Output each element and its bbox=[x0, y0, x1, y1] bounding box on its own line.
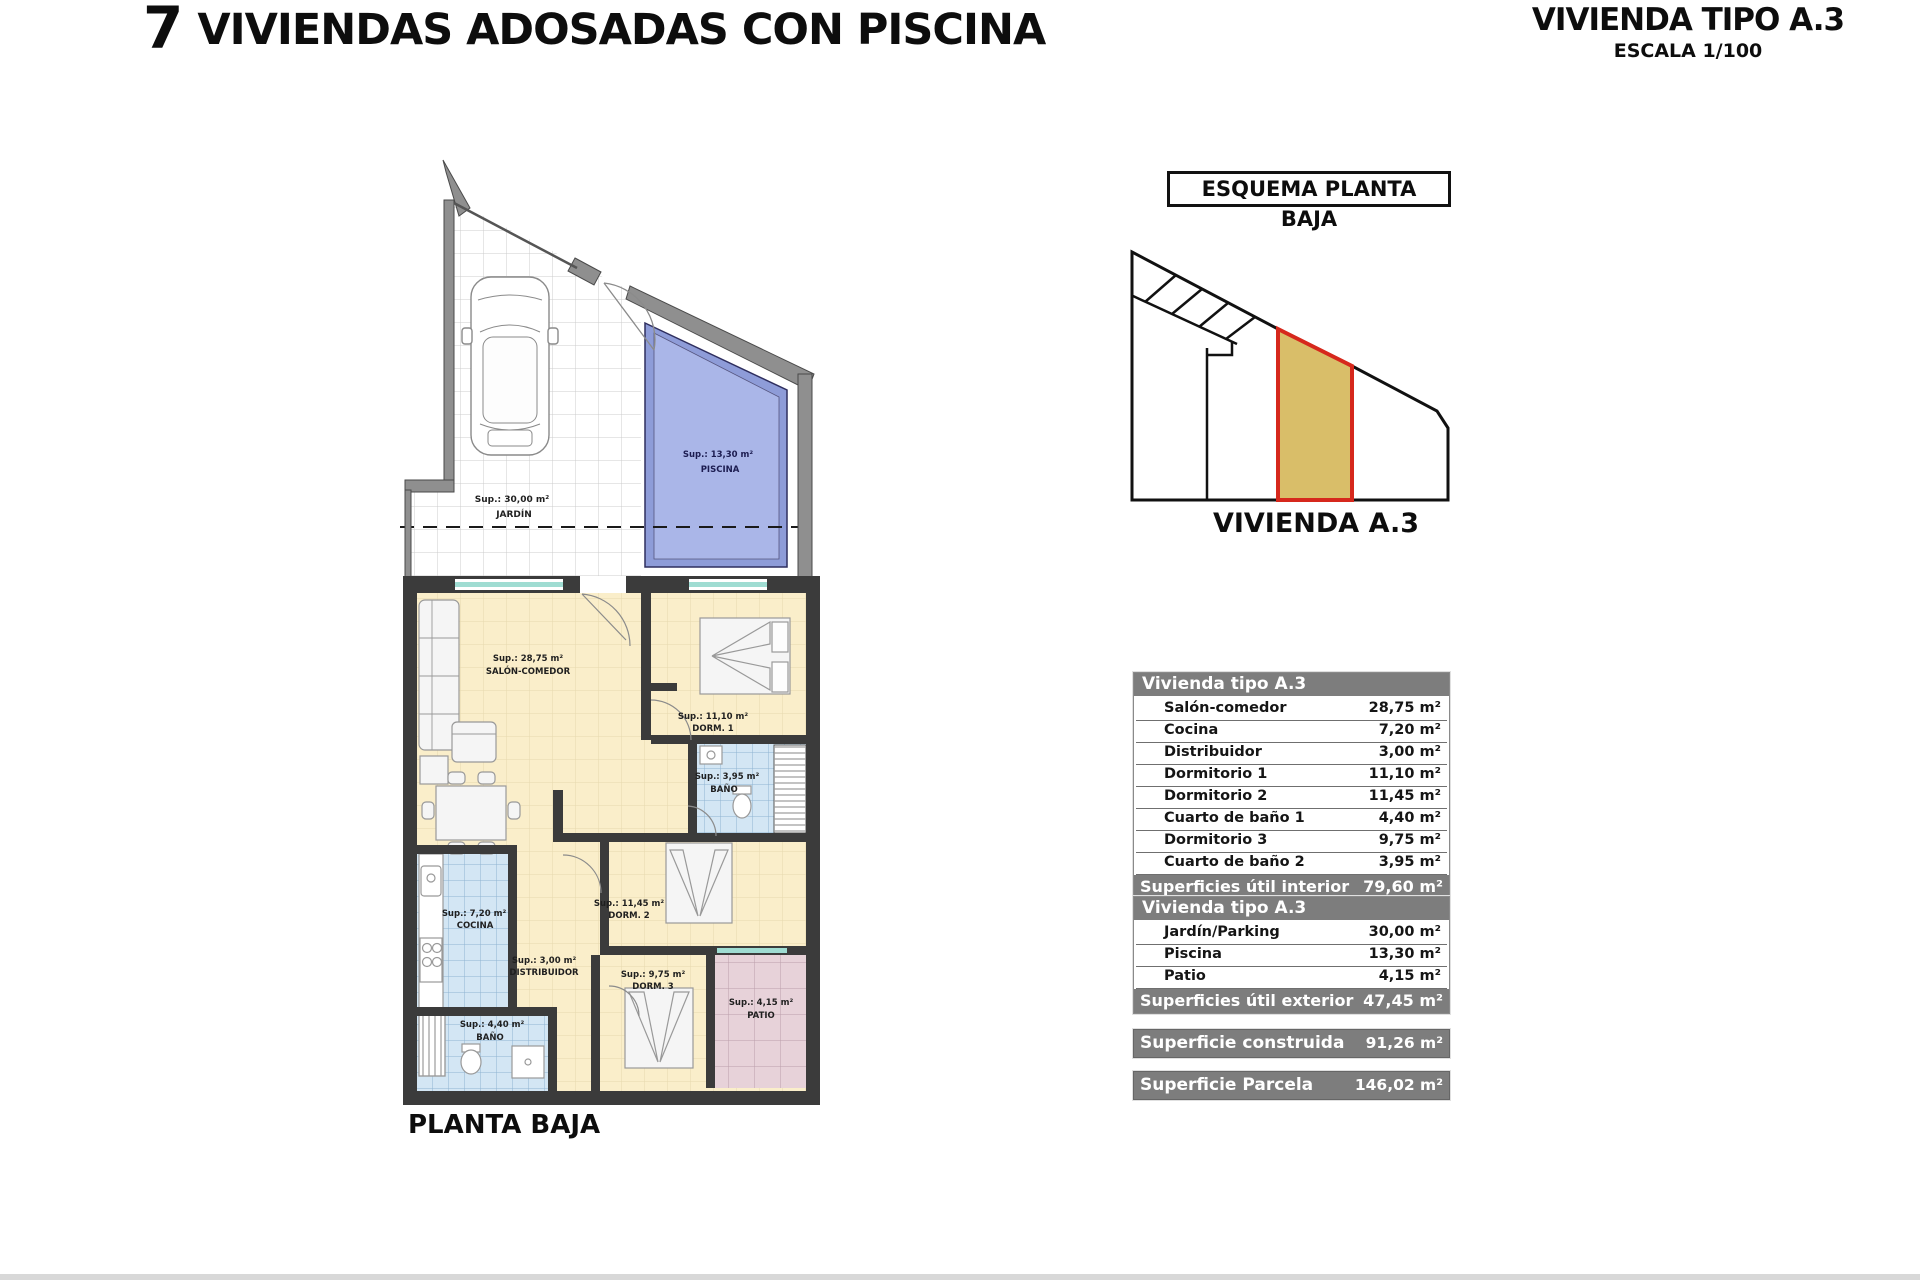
title-number: 7 bbox=[143, 0, 183, 62]
table-header: Vivienda tipo A.3 bbox=[1134, 673, 1449, 696]
table-row: Cocina7,20 m² bbox=[1136, 721, 1447, 743]
exterior-surfaces-table: Vivienda tipo A.3 Jardín/Parking30,00 m²… bbox=[1133, 896, 1450, 1014]
title-text: VIVIENDAS ADOSADAS CON PISCINA bbox=[183, 5, 1045, 55]
svg-text:BAÑO: BAÑO bbox=[710, 784, 737, 795]
table-row: Dormitorio 211,45 m² bbox=[1136, 787, 1447, 809]
table-row: Cuarto de baño 14,40 m² bbox=[1136, 809, 1447, 831]
interior-surfaces-table: Vivienda tipo A.3 Salón-comedor28,75 m² … bbox=[1133, 672, 1450, 900]
table-row: Distribuidor3,00 m² bbox=[1136, 743, 1447, 765]
svg-text:DORM. 1: DORM. 1 bbox=[692, 724, 733, 734]
pool-name-label: PISCINA bbox=[701, 465, 740, 475]
floor-plan-svg: Sup.: 13,30 m² PISCINA Sup.: 30,00 m² JA… bbox=[385, 150, 830, 1115]
svg-text:DISTRIBUIDOR: DISTRIBUIDOR bbox=[509, 968, 579, 978]
svg-text:Sup.: 4,40 m²: Sup.: 4,40 m² bbox=[460, 1020, 525, 1030]
table-row: Dormitorio 111,10 m² bbox=[1136, 765, 1447, 787]
table-footer: Superficies útil exterior 47,45 m² bbox=[1134, 989, 1449, 1013]
garden-name-label: JARDÍN bbox=[495, 508, 532, 520]
garden-sup-label: Sup.: 30,00 m² bbox=[475, 495, 549, 505]
table-body: Salón-comedor28,75 m² Cocina7,20 m² Dist… bbox=[1134, 696, 1449, 875]
svg-text:Sup.: 11,10 m²: Sup.: 11,10 m² bbox=[678, 712, 749, 722]
svg-text:Sup.: 9,75 m²: Sup.: 9,75 m² bbox=[621, 970, 686, 980]
svg-text:Sup.: 4,15 m²: Sup.: 4,15 m² bbox=[729, 998, 794, 1008]
table-row: Dormitorio 39,75 m² bbox=[1136, 831, 1447, 853]
svg-text:COCINA: COCINA bbox=[457, 921, 494, 931]
table-row: Jardín/Parking30,00 m² bbox=[1136, 923, 1447, 945]
svg-text:BAÑO: BAÑO bbox=[476, 1032, 503, 1043]
dwelling-type-title: VIVIENDA TIPO A.3 bbox=[1498, 2, 1878, 38]
drawing-sheet: 7 VIVIENDAS ADOSADAS CON PISCINA VIVIEND… bbox=[0, 0, 1920, 1280]
highlighted-parcel-a3 bbox=[1278, 329, 1352, 500]
car-top-view bbox=[462, 277, 558, 455]
esquema-box-label: ESQUEMA PLANTA BAJA bbox=[1167, 171, 1451, 207]
svg-text:Sup.: 28,75 m²: Sup.: 28,75 m² bbox=[493, 654, 564, 664]
svg-text:Sup.: 3,00 m²: Sup.: 3,00 m² bbox=[512, 956, 577, 966]
svg-text:SALÓN-COMEDOR: SALÓN-COMEDOR bbox=[486, 665, 571, 677]
table-row: Piscina13,30 m² bbox=[1136, 945, 1447, 967]
svg-text:Sup.: 7,20 m²: Sup.: 7,20 m² bbox=[442, 909, 507, 919]
plot-surface-bar: Superficie Parcela 146,02 m² bbox=[1133, 1071, 1450, 1100]
svg-text:PATIO: PATIO bbox=[747, 1011, 775, 1021]
table-header: Vivienda tipo A.3 bbox=[1134, 897, 1449, 920]
schema-caption: VIVIENDA A.3 bbox=[1158, 508, 1474, 539]
table-body: Jardín/Parking30,00 m² Piscina13,30 m² P… bbox=[1134, 920, 1449, 989]
table-row: Cuarto de baño 23,95 m² bbox=[1136, 853, 1447, 875]
sheet-title: 7 VIVIENDAS ADOSADAS CON PISCINA bbox=[143, 0, 1045, 62]
pool-sup-label: Sup.: 13,30 m² bbox=[683, 450, 754, 460]
table-row: Patio4,15 m² bbox=[1136, 967, 1447, 989]
svg-text:Sup.: 3,95 m²: Sup.: 3,95 m² bbox=[695, 772, 760, 782]
schema-svg bbox=[1105, 225, 1475, 510]
plan-caption: PLANTA BAJA bbox=[408, 1110, 600, 1140]
svg-text:Sup.: 11,45 m²: Sup.: 11,45 m² bbox=[594, 899, 665, 909]
scale-label: ESCALA 1/100 bbox=[1498, 40, 1878, 62]
svg-text:DORM. 2: DORM. 2 bbox=[608, 911, 649, 921]
table-row: Salón-comedor28,75 m² bbox=[1136, 699, 1447, 721]
built-surface-bar: Superficie construida 91,26 m² bbox=[1133, 1029, 1450, 1058]
bottom-edge-strip bbox=[0, 1274, 1920, 1280]
svg-text:DORM. 3: DORM. 3 bbox=[632, 982, 673, 992]
